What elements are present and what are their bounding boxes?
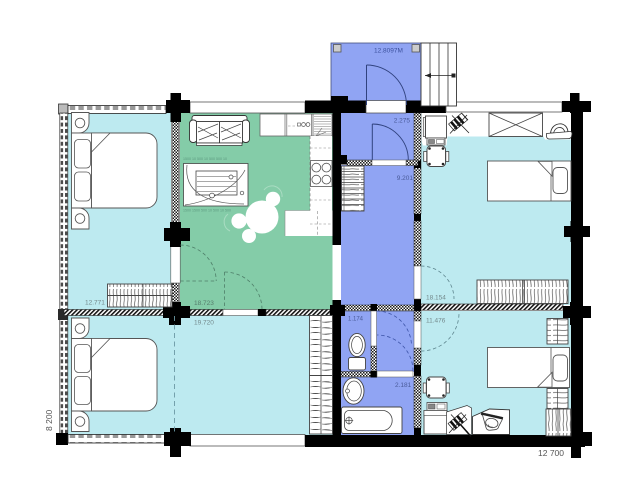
svg-text:1500 10 500 10 500 500 10: 1500 10 500 10 500 500 10	[183, 157, 227, 161]
svg-text:1500 1500 500 10 500 10 50: 1500 1500 500 10 500 10 500	[183, 209, 231, 213]
svg-text:12.8097М: 12.8097М	[374, 48, 403, 55]
svg-text:1.174: 1.174	[348, 317, 364, 323]
svg-text:2.181: 2.181	[395, 382, 412, 389]
svg-text:18.154: 18.154	[426, 295, 446, 302]
svg-text:19.720: 19.720	[194, 320, 214, 327]
svg-text:12 700: 12 700	[538, 448, 564, 458]
svg-text:8 200: 8 200	[44, 409, 54, 431]
svg-text:9.201: 9.201	[397, 175, 414, 182]
svg-text:12.771: 12.771	[85, 300, 105, 307]
svg-text:11.476: 11.476	[426, 318, 446, 325]
svg-text:18.723: 18.723	[194, 300, 214, 307]
svg-text:2.275: 2.275	[394, 118, 411, 125]
